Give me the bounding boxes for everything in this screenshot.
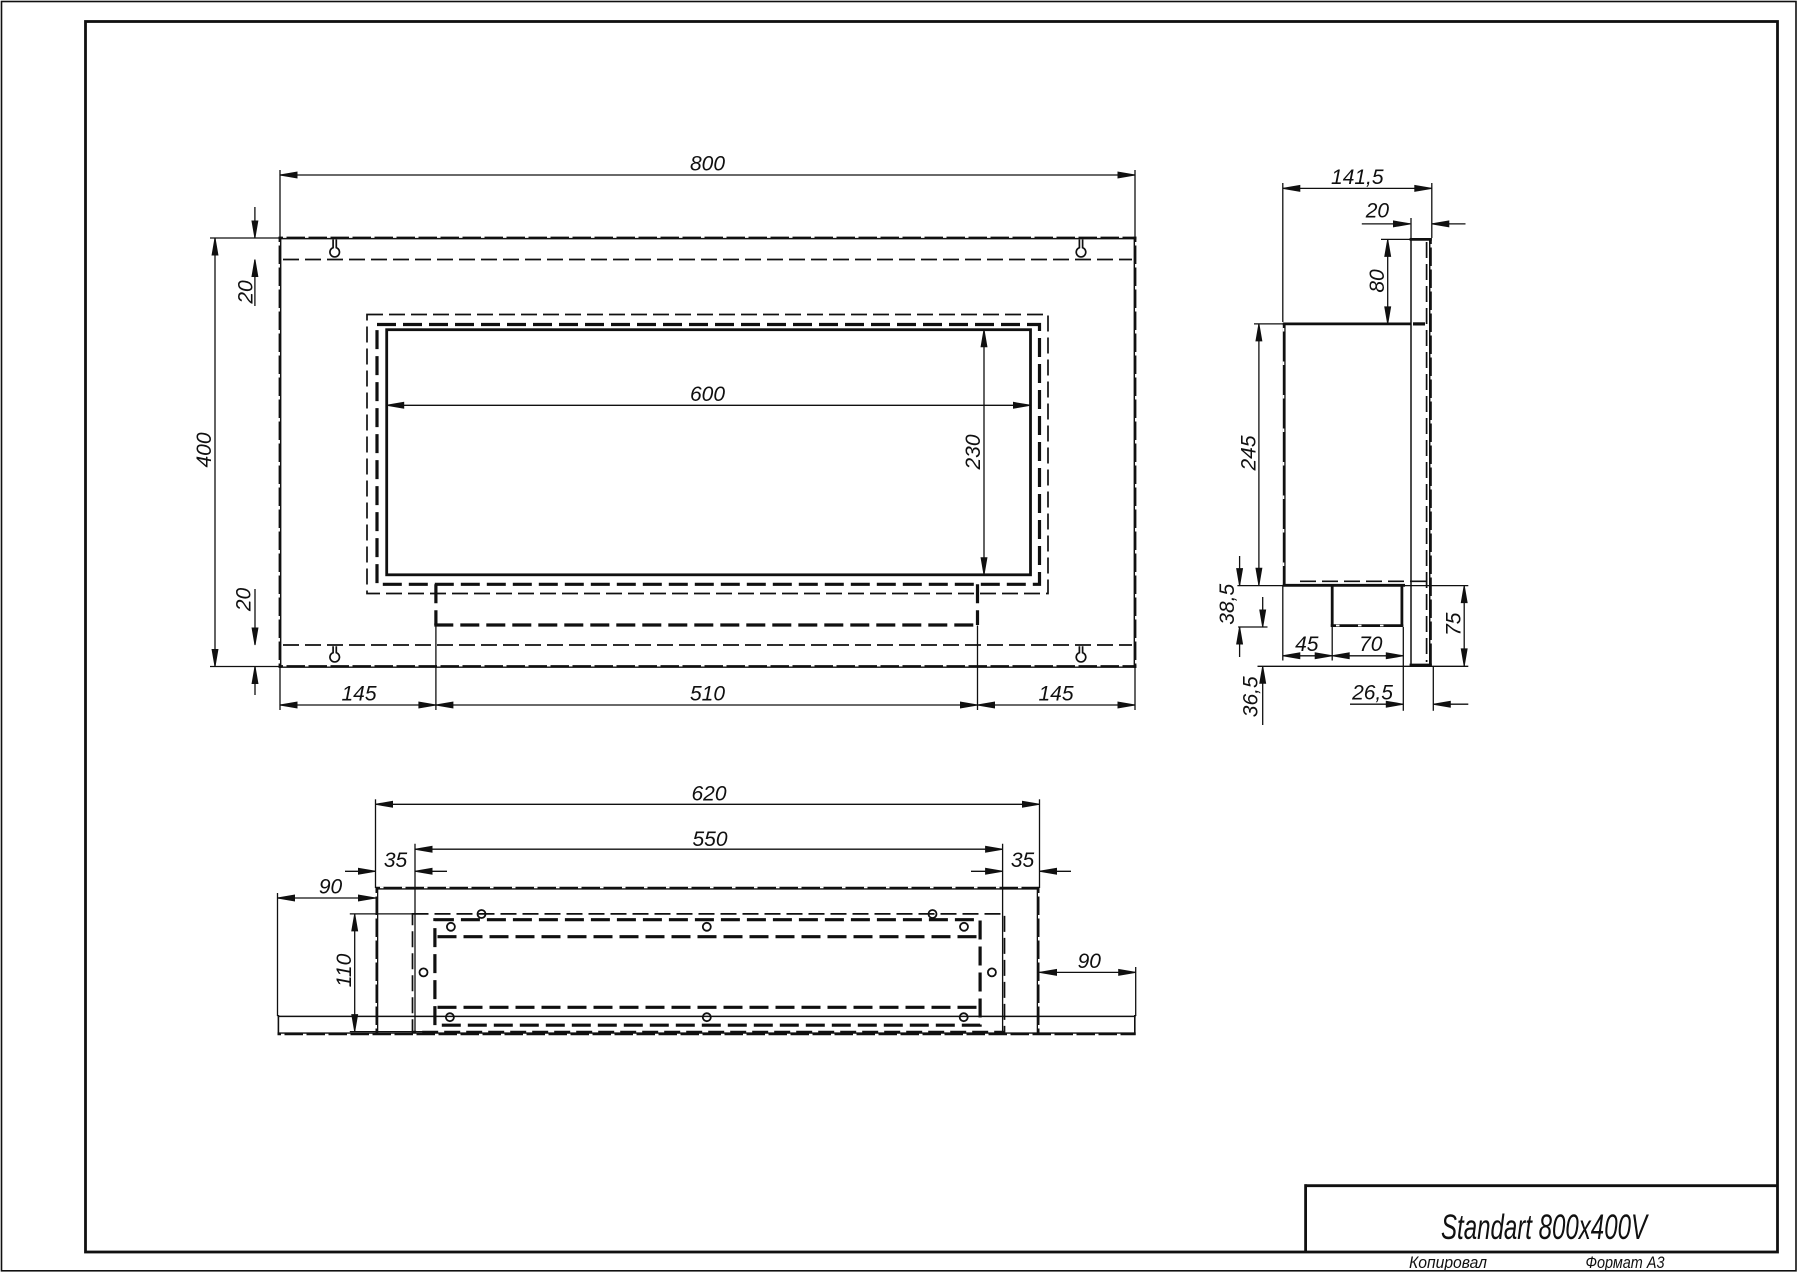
svg-text:20: 20 <box>233 588 256 613</box>
svg-text:90: 90 <box>319 876 343 899</box>
svg-text:230: 230 <box>962 434 985 470</box>
svg-text:510: 510 <box>690 683 725 706</box>
svg-text:20: 20 <box>235 280 258 305</box>
svg-text:26,5: 26,5 <box>1351 682 1393 705</box>
svg-text:Формат А3: Формат А3 <box>1586 1254 1666 1272</box>
svg-text:90: 90 <box>1078 950 1102 973</box>
svg-text:20: 20 <box>1365 199 1390 222</box>
svg-text:550: 550 <box>692 828 727 851</box>
svg-text:245: 245 <box>1237 435 1260 471</box>
svg-text:Standart 800x400V: Standart 800x400V <box>1441 1208 1650 1247</box>
svg-text:35: 35 <box>1011 849 1035 872</box>
svg-text:45: 45 <box>1295 633 1319 656</box>
svg-text:110: 110 <box>333 953 356 987</box>
svg-text:145: 145 <box>341 683 376 706</box>
svg-text:800: 800 <box>690 153 725 176</box>
svg-text:36,5: 36,5 <box>1239 676 1262 717</box>
svg-text:600: 600 <box>690 383 725 406</box>
svg-text:Копировал: Копировал <box>1409 1254 1487 1272</box>
svg-text:620: 620 <box>691 783 726 806</box>
svg-text:75: 75 <box>1443 612 1466 636</box>
svg-text:141,5: 141,5 <box>1331 166 1384 189</box>
svg-text:80: 80 <box>1366 269 1389 293</box>
svg-text:400: 400 <box>193 432 216 467</box>
svg-text:38,5: 38,5 <box>1216 584 1239 625</box>
svg-text:35: 35 <box>384 849 408 872</box>
svg-text:70: 70 <box>1359 633 1383 656</box>
svg-text:145: 145 <box>1038 683 1073 706</box>
